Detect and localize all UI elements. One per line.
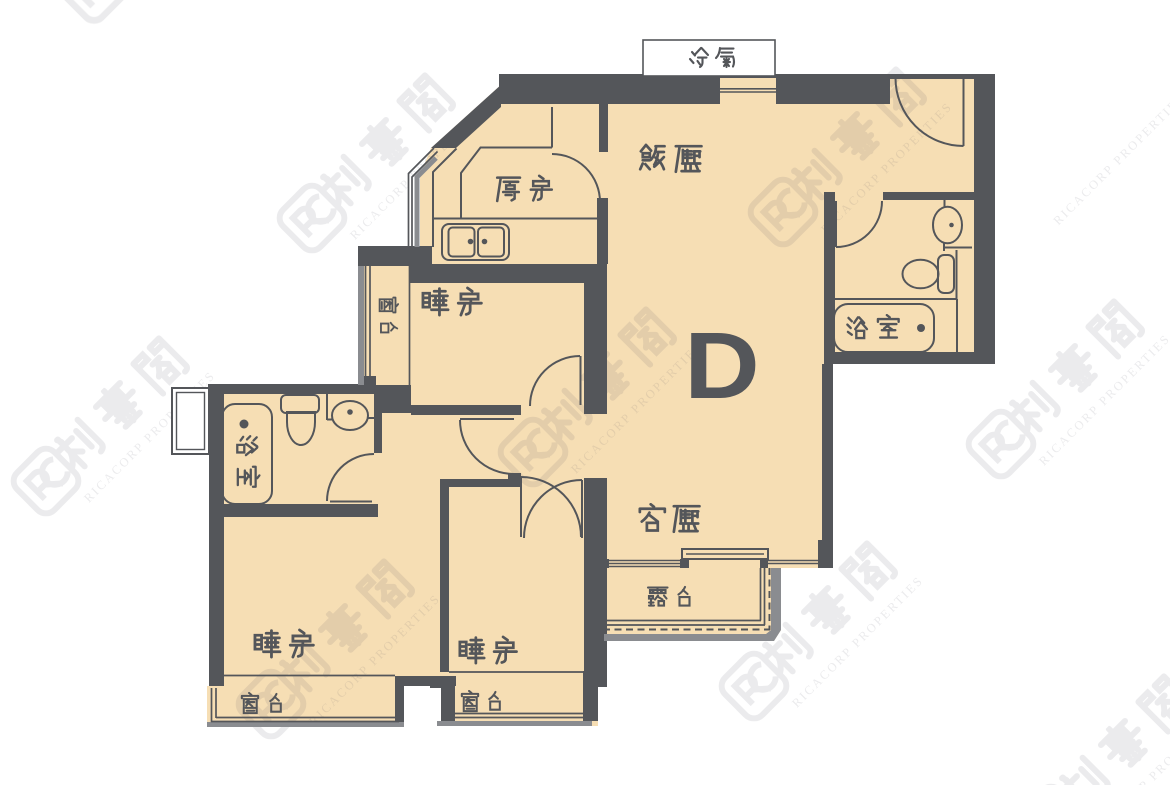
svg-text:D: D xyxy=(684,313,759,419)
svg-text:RICACORP PROPERTIES: RICACORP PROPERTIES xyxy=(1051,91,1170,228)
